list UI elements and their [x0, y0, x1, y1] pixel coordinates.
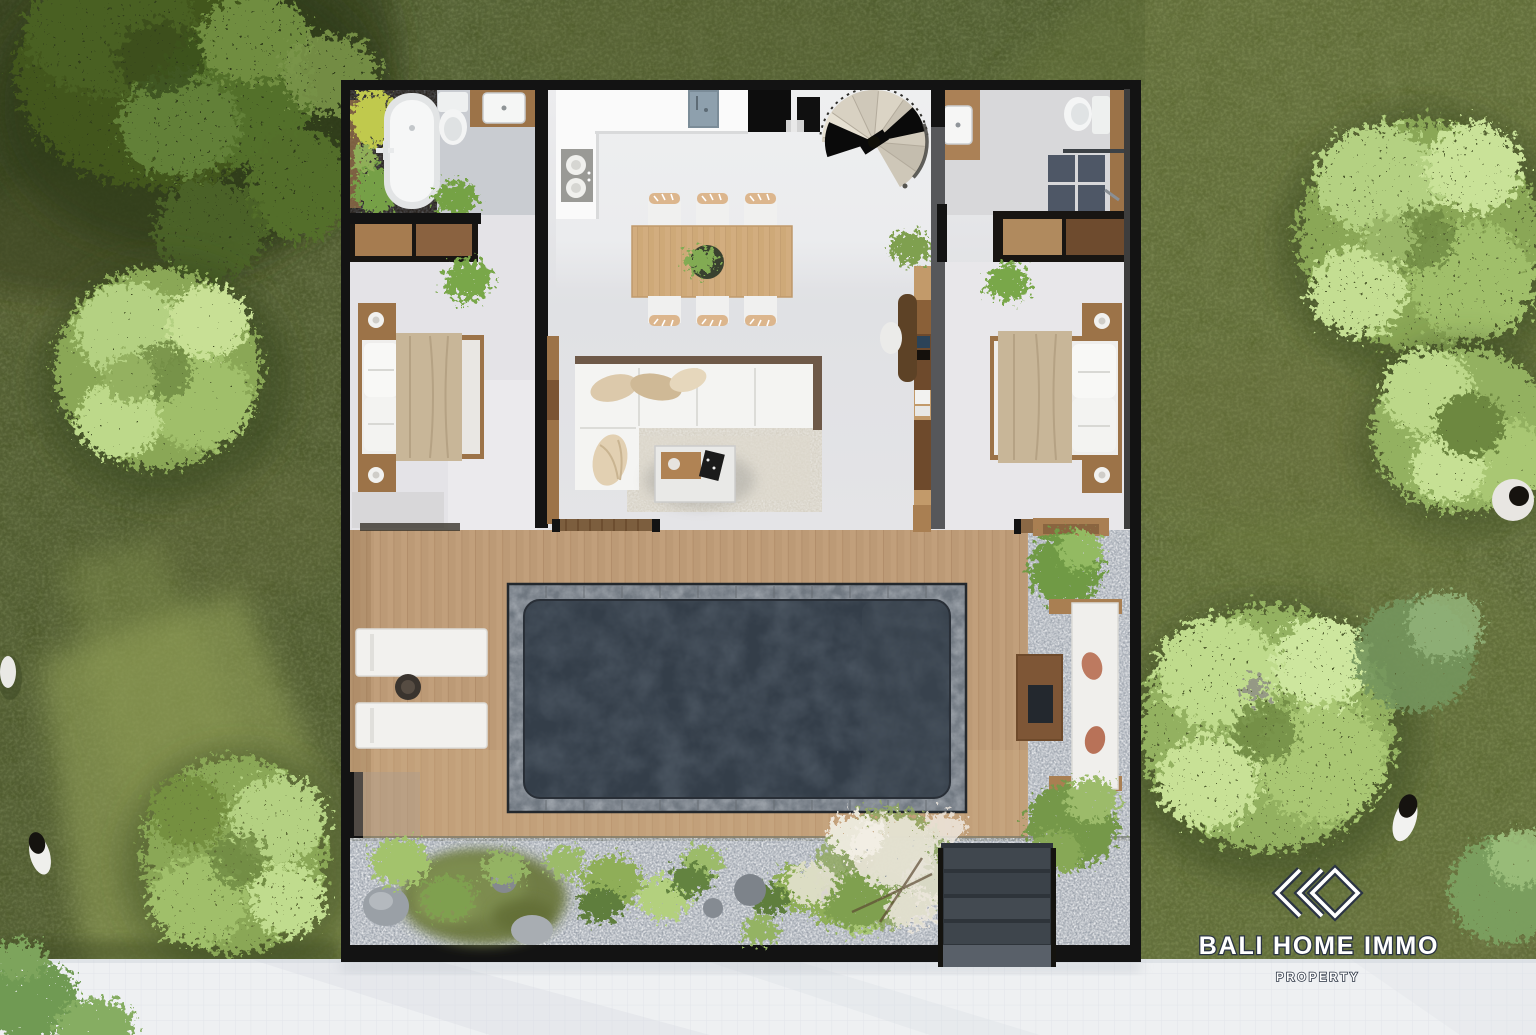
svg-text:PROPERTY: PROPERTY — [1276, 972, 1360, 984]
svg-text:BALI HOME IMMO: BALI HOME IMMO — [1199, 932, 1439, 960]
